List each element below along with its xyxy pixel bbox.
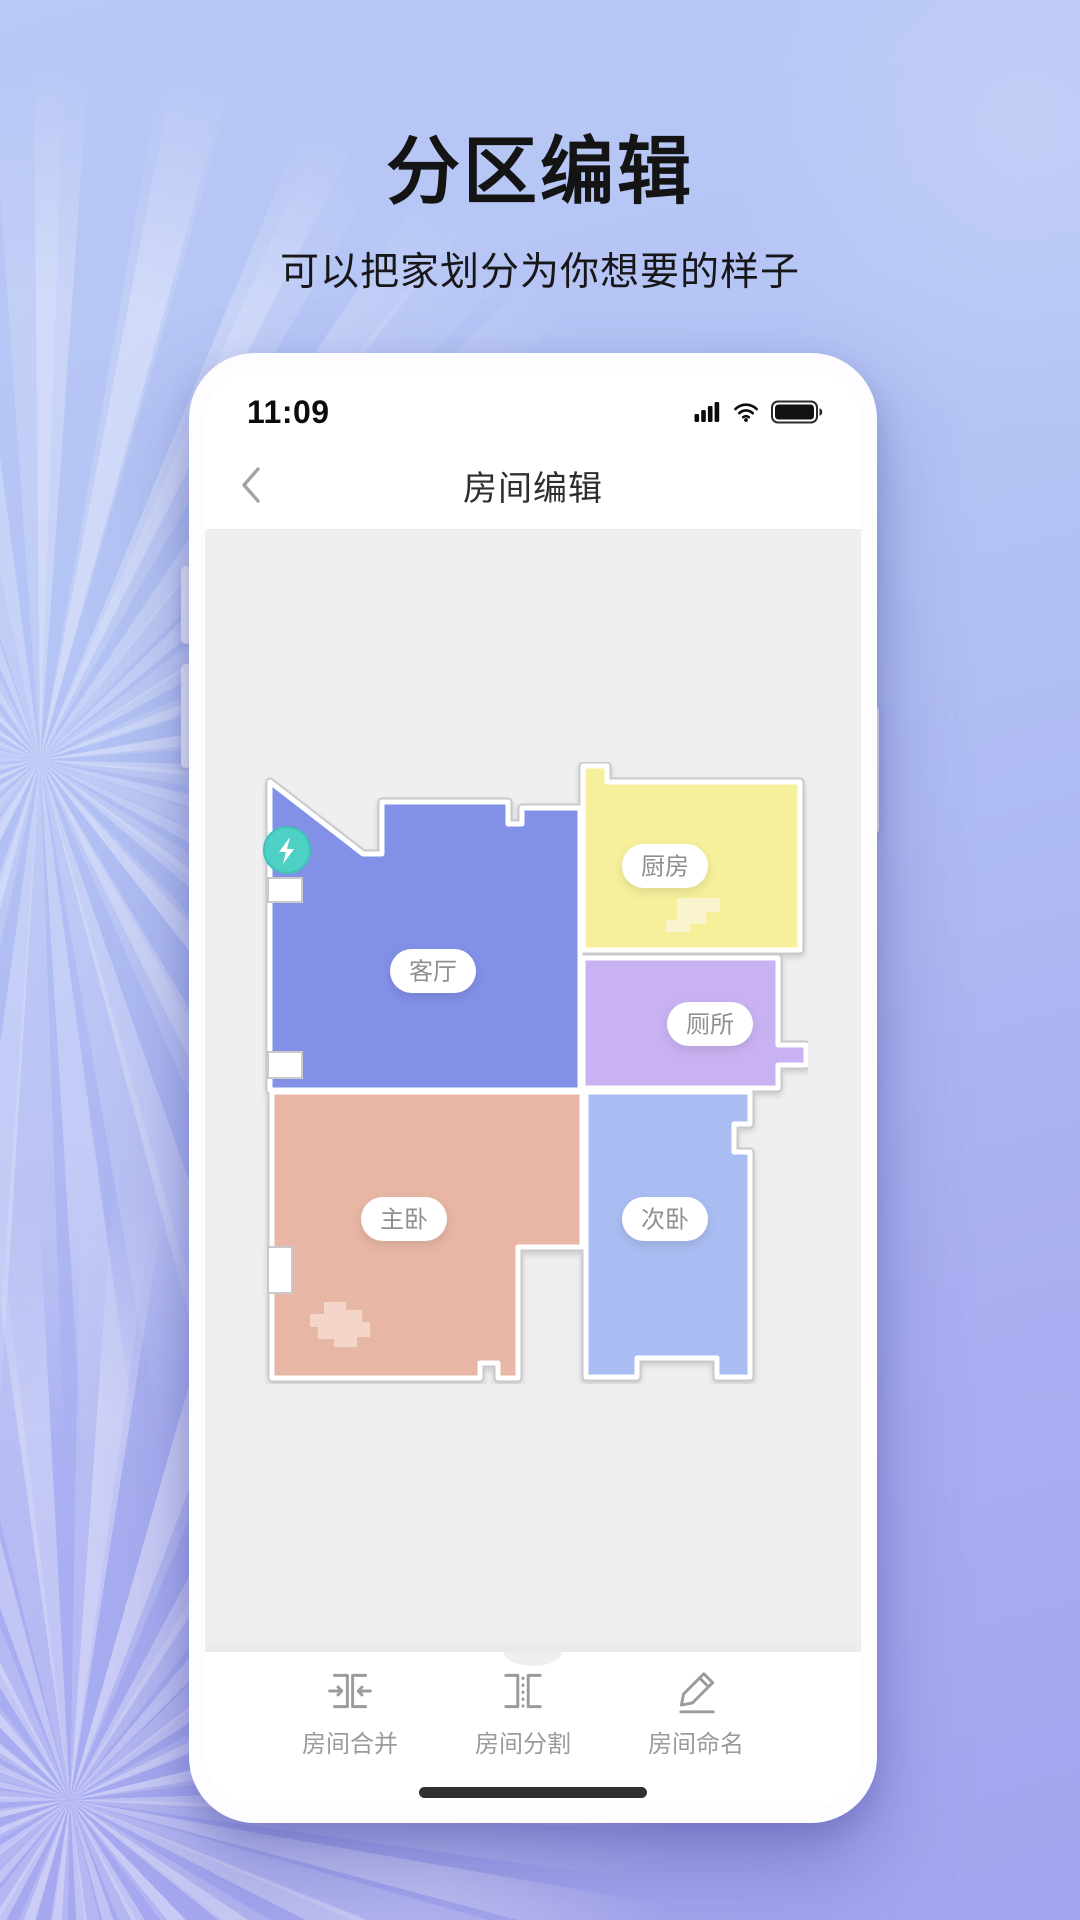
split-rooms-label: 房间分割 <box>475 1724 571 1759</box>
phone-mockup: 11:09 <box>189 353 877 1823</box>
merge-rooms-button[interactable]: 房间合并 <box>302 1666 398 1759</box>
floor-plan: 客厅厨房厕所主卧次卧 <box>262 762 808 1384</box>
nav-bar: 房间编辑 <box>205 441 861 530</box>
room-label-living: 客厅 <box>390 949 476 993</box>
app-screen: 11:09 <box>205 369 861 1807</box>
rename-room-icon <box>671 1666 721 1716</box>
svg-text:厨房: 厨房 <box>641 854 689 881</box>
merge-rooms-label: 房间合并 <box>302 1724 398 1759</box>
nav-title: 房间编辑 <box>463 461 603 510</box>
map-notch <box>504 1652 562 1666</box>
svg-text:次卧: 次卧 <box>641 1207 689 1234</box>
room-label-second: 次卧 <box>622 1197 708 1241</box>
rename-room-label: 房间命名 <box>648 1724 744 1759</box>
chevron-left-icon <box>240 466 262 504</box>
svg-text:厕所: 厕所 <box>686 1012 734 1039</box>
room-label-master: 主卧 <box>361 1197 447 1241</box>
svg-text:客厅: 客厅 <box>409 959 457 986</box>
signal-icon <box>694 401 721 423</box>
room-label-toilet: 厕所 <box>667 1002 753 1046</box>
status-time: 11:09 <box>247 394 330 431</box>
bottom-toolbar: 房间合并 房间分割 <box>205 1652 861 1807</box>
wifi-icon <box>733 402 759 422</box>
wall-stub <box>268 878 302 902</box>
room-living[interactable] <box>270 782 580 1090</box>
page-title: 分区编辑 <box>0 112 1080 219</box>
room-label-kitchen: 厨房 <box>622 844 708 888</box>
home-indicator[interactable] <box>419 1787 647 1798</box>
svg-text:主卧: 主卧 <box>380 1207 428 1234</box>
status-bar: 11:09 <box>205 369 861 441</box>
wall-stub <box>268 1052 302 1078</box>
page-background: 分区编辑 可以把家划分为你想要的样子 11:09 <box>0 0 1080 1920</box>
status-icons <box>694 400 823 424</box>
merge-rooms-icon <box>325 1666 375 1716</box>
back-button[interactable] <box>229 463 273 507</box>
split-rooms-button[interactable]: 房间分割 <box>475 1666 571 1759</box>
rename-room-button[interactable]: 房间命名 <box>648 1666 744 1759</box>
page-subtitle: 可以把家划分为你想要的样子 <box>0 241 1080 297</box>
split-rooms-icon <box>498 1666 548 1716</box>
wall-stub <box>268 1247 292 1293</box>
battery-icon <box>771 400 823 424</box>
map-area[interactable]: 客厅厨房厕所主卧次卧 <box>205 530 861 1652</box>
